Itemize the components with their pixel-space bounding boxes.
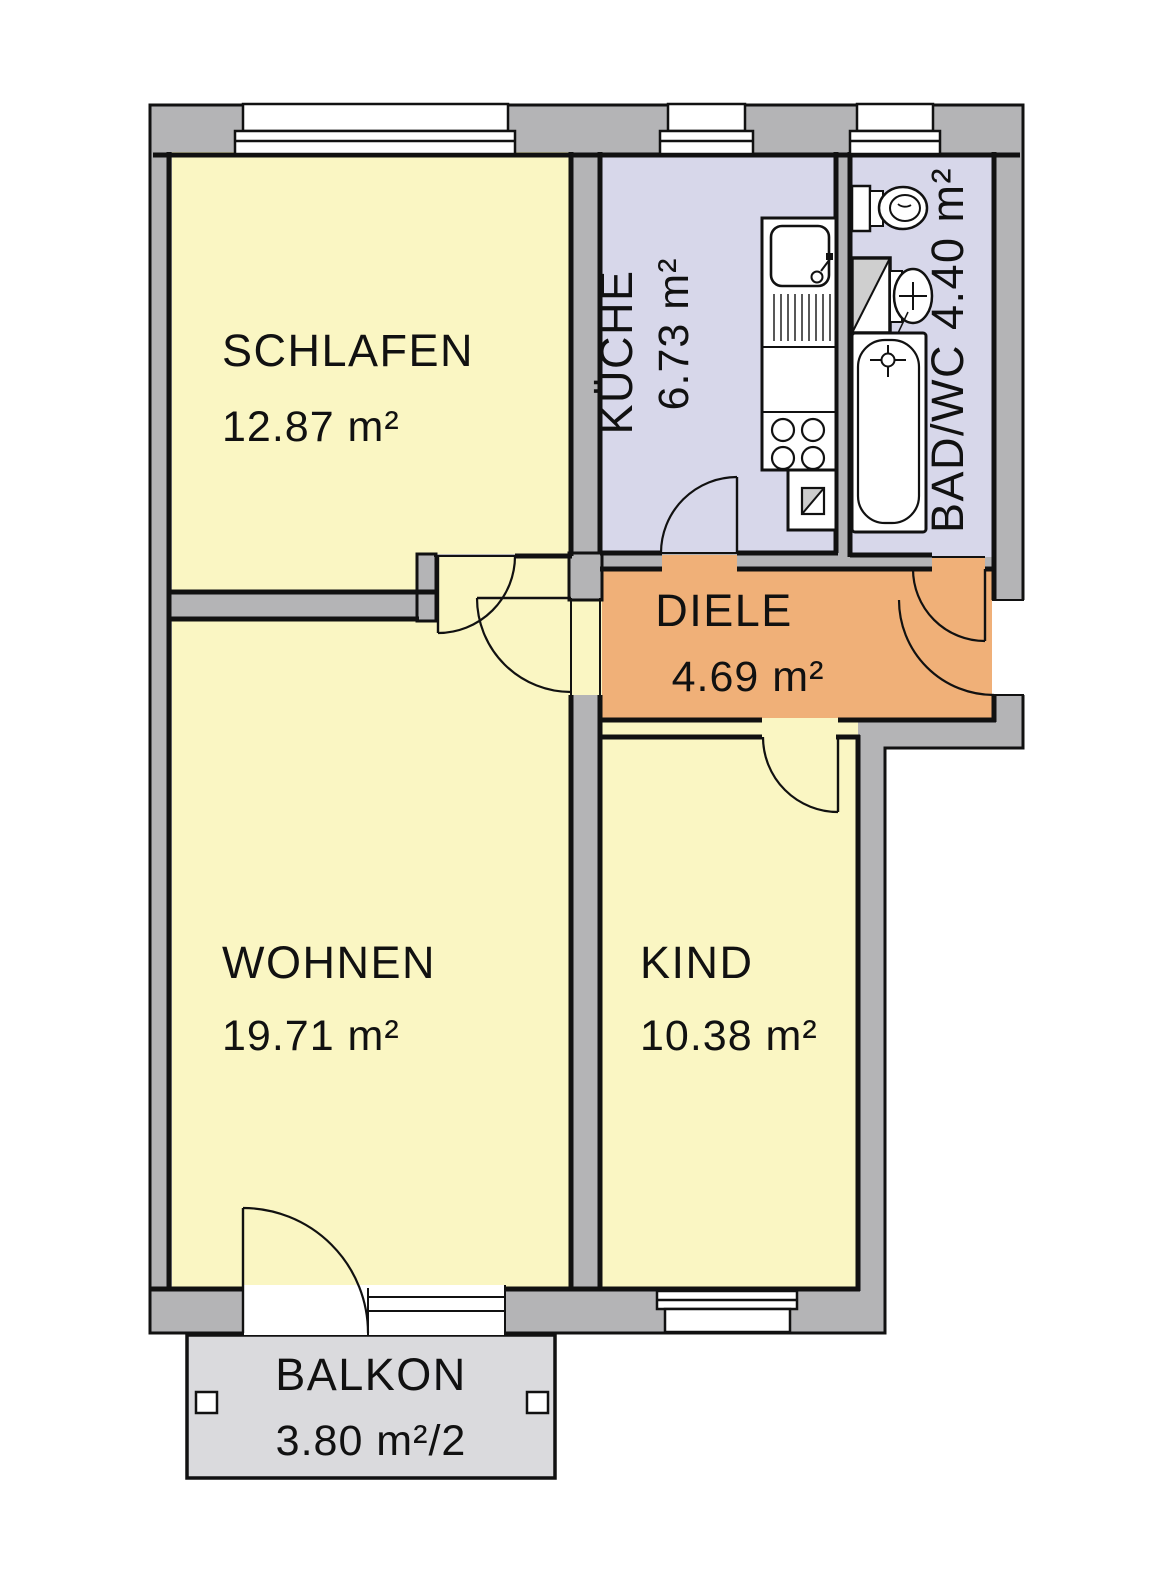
kind-label: KIND xyxy=(640,937,754,988)
entrance-opening xyxy=(992,600,1025,695)
kind-area: 10.38 m² xyxy=(640,1012,818,1060)
diele-wohnen-doorway-floor xyxy=(572,598,602,695)
floor-plan: SCHLAFEN 12.87 m² KÜCHE 6.73 m² BAD/WC 4… xyxy=(0,0,1165,1593)
wohnen-label: WOHNEN xyxy=(222,937,436,988)
diele-area: 4.69 m² xyxy=(672,653,825,701)
kueche-label: KÜCHE xyxy=(591,269,642,434)
kueche-area: 6.73 m² xyxy=(650,258,698,411)
room-kind-floor xyxy=(602,718,858,1289)
balcony-post-right xyxy=(527,1392,548,1413)
diele-bad-doorway-floor xyxy=(932,557,985,569)
bathtub-icon xyxy=(852,333,926,532)
balkon-area: 3.80 m²/2 xyxy=(276,1417,467,1465)
bad-label: BAD/WC 4.40 m² xyxy=(922,167,973,533)
wohnen-area: 19.71 m² xyxy=(222,1012,400,1060)
room-wohnen-passage-floor xyxy=(436,556,572,622)
wall-corner-block xyxy=(569,553,602,600)
bad-window xyxy=(850,104,940,154)
kitchen-faucet-icon xyxy=(812,272,823,283)
floor-plan-drawing: SCHLAFEN 12.87 m² KÜCHE 6.73 m² BAD/WC 4… xyxy=(0,0,1165,1593)
kitchen-base-cabinet-icon xyxy=(788,470,836,530)
kind-window xyxy=(657,1291,797,1332)
diele-kueche-doorway-floor xyxy=(662,555,737,569)
kueche-window xyxy=(660,104,753,154)
toilet-icon xyxy=(852,186,927,231)
schlafen-window xyxy=(235,104,515,154)
wall-jog-block xyxy=(417,554,436,621)
schlafen-area: 12.87 m² xyxy=(222,403,400,451)
schlafen-label: SCHLAFEN xyxy=(222,325,474,376)
kitchen-counter-icon xyxy=(762,218,836,470)
balcony-post-left xyxy=(196,1392,217,1413)
diele-label: DIELE xyxy=(655,585,793,636)
shower-tray-icon xyxy=(852,258,890,333)
balkon-label: BALKON xyxy=(275,1349,467,1400)
